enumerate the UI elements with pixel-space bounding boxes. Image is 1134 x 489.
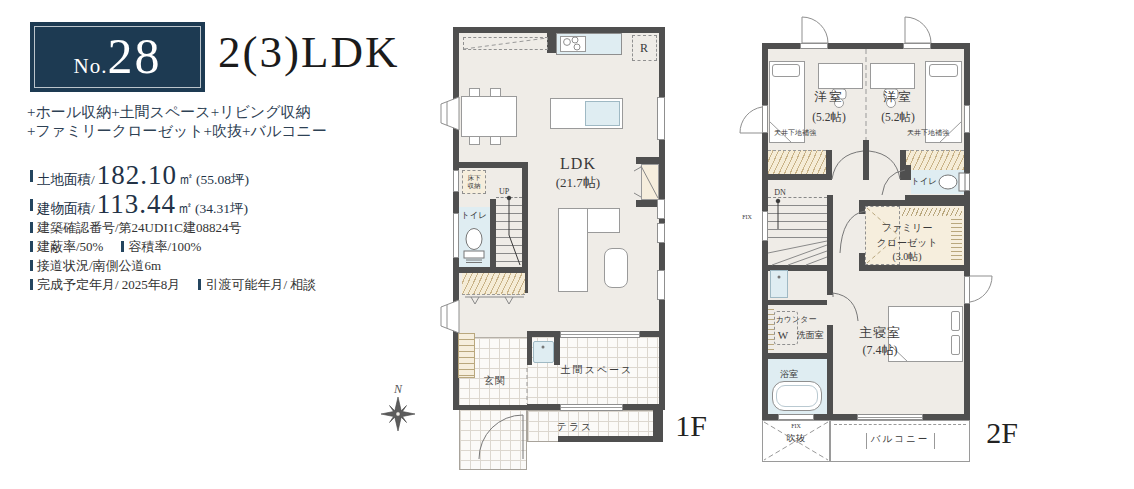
land-area-row: 土地面積/ 182.10 ㎡ (55.08坪) <box>30 160 249 191</box>
label-marker <box>198 279 201 290</box>
master-bedroom-size: (7.4帖) <box>863 342 898 359</box>
bay-window <box>441 300 459 333</box>
floor-tag-2f: 2F <box>986 416 1018 450</box>
ldk-size-label: (21.7帖) <box>556 174 600 192</box>
counter-label: カウンター <box>776 314 817 325</box>
bay-window <box>441 97 459 130</box>
terrace-label: テラス <box>557 420 594 434</box>
fix-window-label: FIX <box>742 214 752 220</box>
door-arc <box>882 170 905 195</box>
building-area-row: 建物面積/ 113.44 ㎡ (34.31坪) <box>30 189 248 220</box>
family-closet-label: ファミリー <box>882 221 933 235</box>
label-marker <box>121 241 124 252</box>
faucet-icon <box>542 346 545 349</box>
label-marker <box>30 260 33 271</box>
ceiling-reinforce-label: 天井下地補強 <box>774 128 816 138</box>
door-arc <box>832 151 900 179</box>
master-bedroom-label: 主寝室 <box>859 324 901 342</box>
ceiling-reinforce-label: 天井下地補強 <box>907 128 949 138</box>
floor-tag-1f: 1F <box>675 409 707 443</box>
detail-road-access: 接道状況/南側公道6m <box>37 256 161 275</box>
building-area-unit: ㎡ <box>177 198 193 219</box>
casement-window <box>740 107 762 133</box>
door-arc <box>840 211 865 253</box>
stairs-fan <box>768 241 827 265</box>
storage-door <box>634 166 658 198</box>
label-marker <box>30 279 33 290</box>
entry-door-arc <box>479 415 523 459</box>
balcony-label: バルコニー <box>871 433 929 446</box>
washer-label: W <box>778 329 788 341</box>
label-marker <box>30 170 33 182</box>
plan-number-badge: No.28 <box>30 22 205 92</box>
floorplan-2f: 洋室 (5.2帖) 洋室 (5.2帖) 天井下地補強 天井下地補強 トイレ DN… <box>762 43 970 463</box>
burner-icon <box>564 37 580 50</box>
label-marker <box>30 199 33 211</box>
doma-label: 土間スペース <box>561 363 634 377</box>
toilet-icon <box>464 229 484 263</box>
stairs-down-label: DN <box>774 188 786 197</box>
void-label: 吹抜 <box>787 432 806 445</box>
floorplan-1f: R 床下 収納 トイレ UP <box>453 27 665 477</box>
feature-list: +ホール収納+土間スペース+リビング収納 +ファミリークローゼット+吹抜+バルコ… <box>27 103 327 141</box>
land-area-tsubo: (55.08坪) <box>196 171 249 189</box>
room-right-size: (5.2帖) <box>881 110 915 125</box>
ldk-label: LDK <box>560 155 596 173</box>
room-right-label: 洋室 <box>884 89 913 106</box>
plan-number-prefix: No. <box>74 54 108 79</box>
plan-number-value: 28 <box>107 27 161 85</box>
fix-window-label: FIX <box>791 423 801 429</box>
toilet-icon <box>939 173 965 191</box>
faucet-icon <box>778 276 781 279</box>
page-title: 2(3)LDK <box>218 26 399 78</box>
detail-handover-date: 引渡可能年月/ 相談 <box>205 275 316 294</box>
detail-completion-date: 完成予定年月/ 2025年8月 <box>37 275 180 294</box>
land-area-unit: ㎡ <box>178 169 194 190</box>
detail-row-3: 接道状況/南側公道6m <box>30 256 316 275</box>
stairs-arrow <box>776 199 780 229</box>
plan-number-badge-inner: No.28 <box>34 26 201 88</box>
1f-detail-overlay <box>453 27 665 477</box>
family-closet-label: クローゼット <box>876 236 937 250</box>
detail-row-4: 完成予定年月/ 2025年8月 引渡可能年月/ 相談 <box>30 275 316 294</box>
toilet-label: トイレ <box>911 176 937 188</box>
family-closet-size: (3.0帖) <box>892 250 921 264</box>
bathroom-label: 浴室 <box>780 368 798 381</box>
stairs-arrow <box>507 196 520 265</box>
detail-row-2: 建蔽率/50% 容積率/100% <box>30 237 316 256</box>
washroom-label: 洗面室 <box>797 329 824 342</box>
genkan-label: 玄関 <box>484 374 506 388</box>
property-details: 建築確認番号/第24UDI1C建08824号 建蔽率/50% 容積率/100% … <box>30 218 316 294</box>
feature-line-1: +ホール収納+土間スペース+リビング収納 <box>27 103 327 122</box>
detail-coverage-ratio: 建蔽率/50% <box>37 237 103 256</box>
room-left-size: (5.2帖) <box>812 110 846 125</box>
hanger-rod <box>465 297 524 304</box>
detail-confirmation-number: 建築確認番号/第24UDI1C建08824号 <box>37 218 241 237</box>
2f-detail-overlay <box>762 43 970 463</box>
detail-row-1: 建築確認番号/第24UDI1C建08824号 <box>30 218 316 237</box>
feature-line-2: +ファミリークローゼット+吹抜+バルコニー <box>27 122 327 141</box>
compass-rose-icon <box>378 394 418 434</box>
casement-window <box>970 276 992 302</box>
building-area-value: 113.44 <box>97 189 176 220</box>
casement-window <box>802 17 828 43</box>
door-arc <box>833 293 858 321</box>
land-area-label: 土地面積/ <box>37 171 95 189</box>
land-area-value: 182.10 <box>97 160 177 191</box>
label-marker <box>30 241 33 252</box>
casement-window <box>905 17 931 43</box>
room-left-label: 洋室 <box>815 89 844 106</box>
label-marker <box>30 222 33 233</box>
building-area-label: 建物面積/ <box>37 200 95 218</box>
building-area-tsubo: (34.31坪) <box>195 200 248 218</box>
detail-floor-area-ratio: 容積率/100% <box>128 237 201 256</box>
floorplan-flyer: { "panel": { "badge_prefix": "No.", "bad… <box>0 0 1134 489</box>
